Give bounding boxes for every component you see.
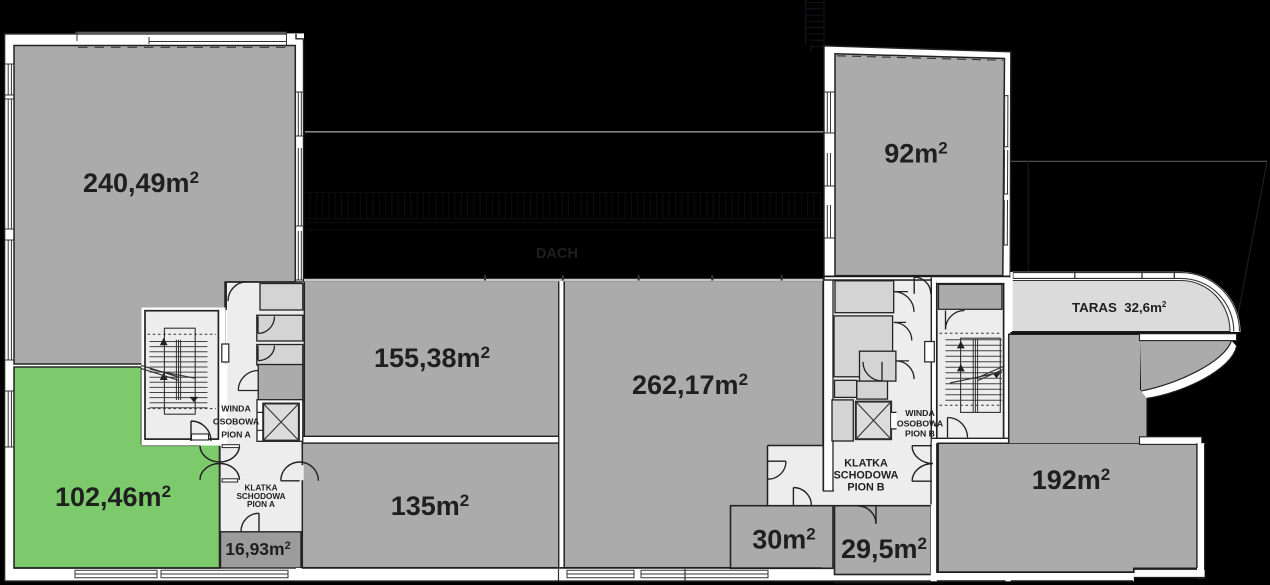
svg-text:240,49m2: 240,49m2 — [83, 168, 199, 198]
svg-text:135m2: 135m2 — [391, 491, 470, 521]
svg-text:16,93m2: 16,93m2 — [225, 539, 290, 559]
svg-text:262,17m2: 262,17m2 — [632, 370, 748, 400]
svg-text:92m2: 92m2 — [884, 139, 948, 169]
svg-text:155,38m2: 155,38m2 — [374, 343, 490, 373]
svg-text:192m2: 192m2 — [1032, 465, 1111, 495]
svg-text:DACH: DACH — [536, 246, 578, 262]
svg-text:102,46m2: 102,46m2 — [55, 482, 171, 512]
svg-text:TARAS 32,6m2: TARAS 32,6m2 — [1072, 300, 1167, 315]
svg-text:30m2: 30m2 — [752, 525, 816, 555]
svg-text:29,5m2: 29,5m2 — [841, 534, 927, 564]
